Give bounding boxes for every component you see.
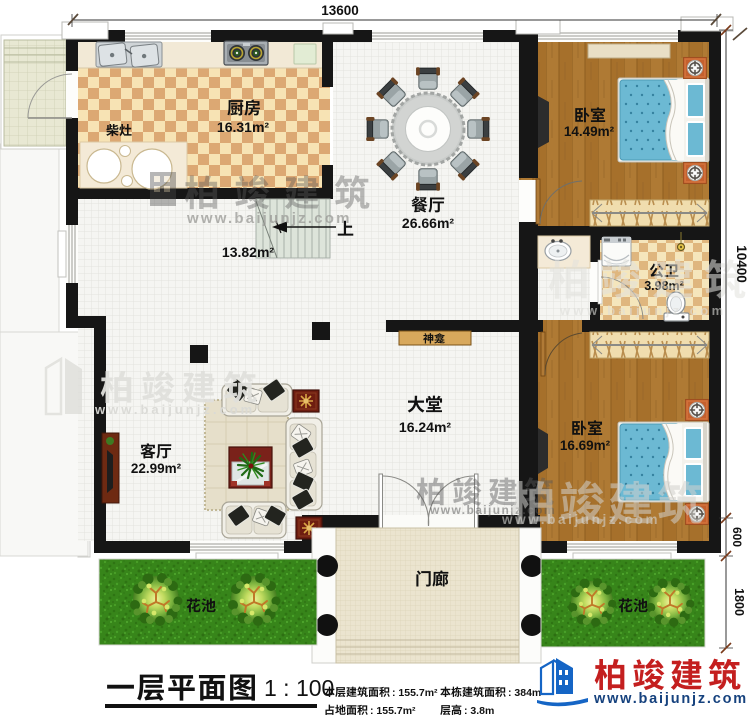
svg-text:www.baijunjz.com: www.baijunjz.com xyxy=(186,210,352,227)
svg-text:600: 600 xyxy=(730,527,744,547)
svg-text:22.99m²: 22.99m² xyxy=(131,461,182,476)
svg-text:16.24m²: 16.24m² xyxy=(399,419,451,435)
svg-text:: 155.7m²: : 155.7m² xyxy=(392,687,438,699)
svg-text:: 155.7m²: : 155.7m² xyxy=(370,705,416,717)
svg-text:www.baijunjz.com: www.baijunjz.com xyxy=(559,303,727,318)
svg-text:1 : 100: 1 : 100 xyxy=(264,675,334,701)
svg-text:16.31m²: 16.31m² xyxy=(217,119,269,135)
svg-text:10400: 10400 xyxy=(734,245,749,283)
svg-text:16.69m²: 16.69m² xyxy=(560,438,611,453)
svg-text:: 3.8m: : 3.8m xyxy=(464,705,494,717)
svg-text:www.baijunjz.com: www.baijunjz.com xyxy=(94,402,255,417)
svg-text:13.82m²: 13.82m² xyxy=(222,244,274,260)
svg-text:1800: 1800 xyxy=(732,588,746,616)
svg-text:13600: 13600 xyxy=(321,3,359,18)
svg-text:14.49m²: 14.49m² xyxy=(564,124,615,139)
svg-text:26.66m²: 26.66m² xyxy=(402,215,454,231)
svg-text:www.baijunjz.com: www.baijunjz.com xyxy=(501,512,660,527)
svg-text:: 384m²: : 384m² xyxy=(508,687,545,699)
svg-text:www.baijunjz.com: www.baijunjz.com xyxy=(593,691,748,707)
